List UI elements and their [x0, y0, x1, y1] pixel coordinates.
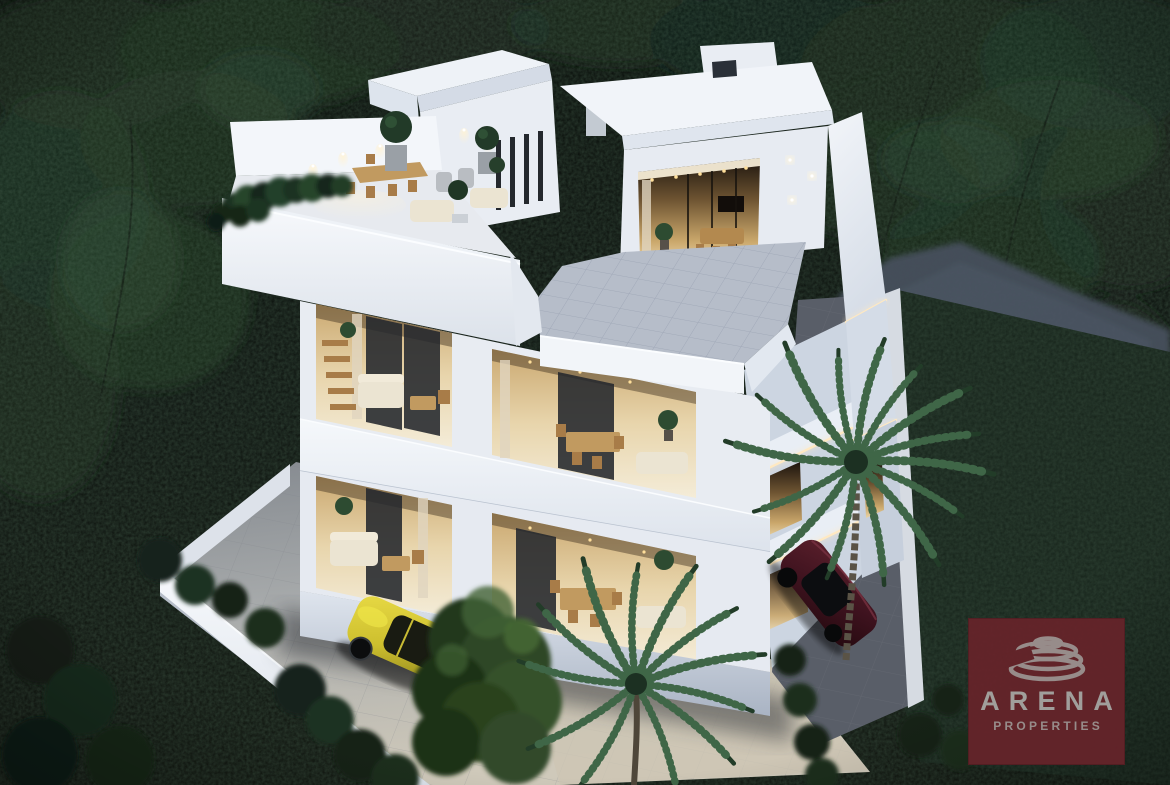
- watermark-badge: ARENA PROPERTIES: [968, 618, 1125, 765]
- tagline-text: PROPERTIES: [990, 719, 1103, 733]
- brand-text: ARENA: [971, 688, 1122, 715]
- dusk-aerial-render: ARENA PROPERTIES: [0, 0, 1170, 785]
- amphitheater-icon: [1001, 628, 1093, 686]
